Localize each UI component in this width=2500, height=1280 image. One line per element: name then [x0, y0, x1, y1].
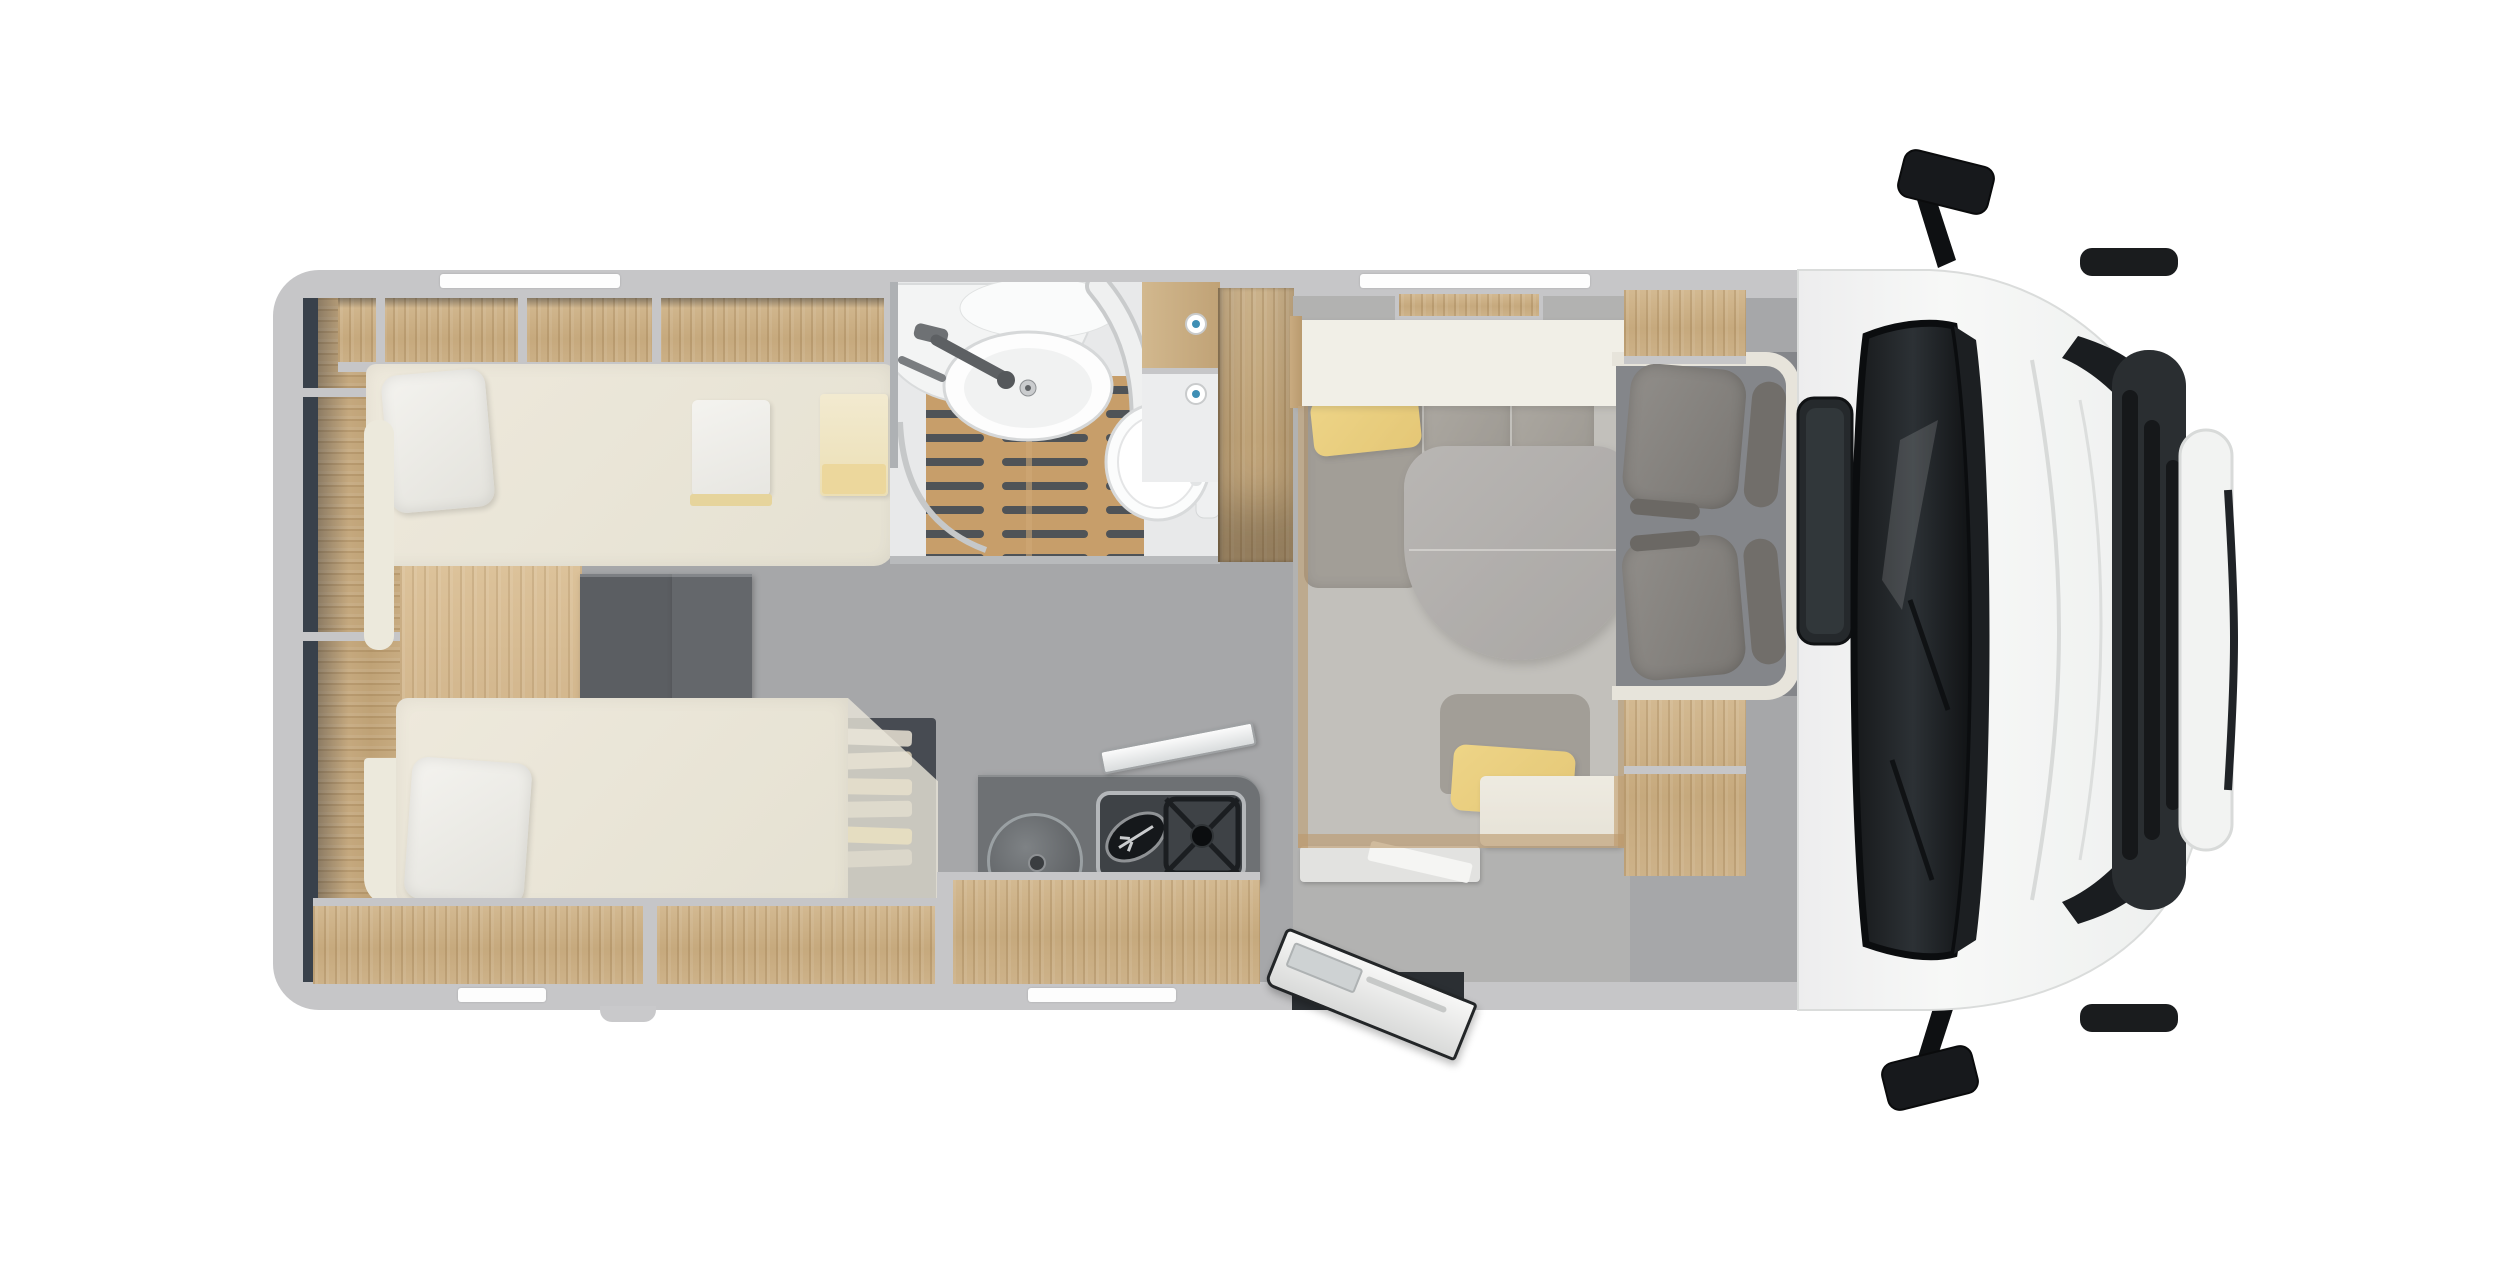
cab-locker-edge — [1624, 356, 1746, 364]
towel-yellow — [822, 464, 886, 494]
cabinet-knob — [1186, 314, 1206, 334]
bedbox-top-edge — [313, 898, 938, 906]
bedbox-front — [313, 906, 643, 984]
folded-clothes — [692, 400, 770, 496]
bathroom-cabinet-white — [1142, 374, 1220, 482]
locker-divider — [518, 298, 527, 372]
drop-bed-trim — [1290, 316, 1302, 408]
hob-two-burner — [1096, 791, 1246, 881]
locker-divider — [652, 298, 661, 372]
cabinet-knob — [1186, 384, 1206, 404]
pillow — [403, 756, 533, 906]
tall-wardrobe — [1218, 288, 1294, 562]
kitchen-front-edge — [951, 872, 1260, 880]
drop-down-bed — [1298, 320, 1628, 406]
bedbox-front — [655, 906, 935, 984]
drop-bed-canopy-bar — [1298, 834, 1628, 848]
cab-exterior — [1780, 140, 2240, 1120]
front-tire — [2080, 248, 2178, 276]
bed-head-frame — [364, 420, 394, 650]
cab-locker — [1624, 700, 1746, 876]
motorhome-floorplan — [0, 0, 2500, 1280]
cab-locker — [1624, 290, 1746, 360]
folded-clothes-base — [690, 494, 772, 506]
body-foot-nub — [600, 1006, 656, 1022]
window-top-dinette — [1360, 274, 1590, 288]
kitchen-front — [951, 880, 1260, 984]
front-tire — [2080, 1004, 2178, 1032]
bedbox-divider — [643, 898, 657, 984]
seat-cushion — [1620, 362, 1748, 512]
pillow — [380, 368, 496, 515]
bathroom-bottom-wall — [890, 556, 1220, 564]
drop-bed-canopy — [1298, 406, 1628, 848]
bathroom-wall-left — [890, 282, 898, 468]
kitchen-divider — [937, 872, 953, 984]
window-bottom-kitchen — [1028, 988, 1176, 1002]
window-bottom-bedroom — [458, 988, 546, 1002]
sink-drain — [1028, 854, 1046, 872]
windscreen — [1854, 323, 1972, 957]
swivel-seat — [1616, 527, 1789, 692]
mirror-top — [1896, 148, 1997, 268]
bed-step — [672, 574, 752, 711]
window-top-bedroom — [440, 274, 620, 288]
overhead-lockers — [338, 298, 894, 372]
bathroom-cabinet-wood — [1142, 282, 1220, 370]
seat-cushion — [1620, 533, 1748, 683]
swivel-seat — [1616, 359, 1788, 522]
dinette-wall-locker — [1395, 290, 1543, 320]
locker-divider — [376, 298, 385, 372]
cab-locker-shelf — [1624, 766, 1746, 774]
